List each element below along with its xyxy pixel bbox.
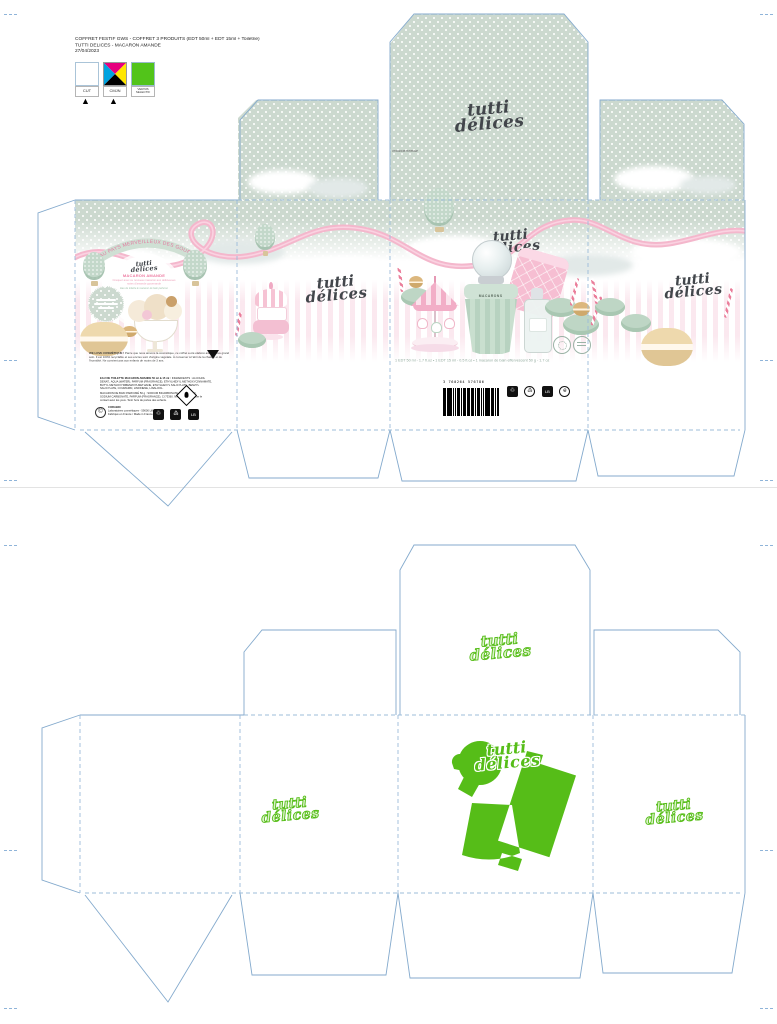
barcode-number: 3 760264 576786	[443, 380, 497, 384]
tower-dome	[255, 289, 287, 307]
crop-mark	[4, 480, 17, 481]
crop-mark	[760, 545, 773, 546]
macaron-illustration	[641, 328, 693, 366]
cmyk-marker-icon: ▲	[109, 97, 118, 106]
carousel-illustration	[411, 282, 459, 354]
crop-mark	[760, 14, 773, 15]
mini-macaron-icon	[573, 302, 590, 316]
cloud	[680, 176, 736, 194]
pouf-illustration	[595, 298, 625, 316]
green-medallion	[88, 286, 124, 322]
cut-marker-icon: ▲	[81, 97, 90, 106]
carousel-horse	[417, 318, 428, 329]
lb-icon: LB	[188, 409, 199, 420]
regulatory-icons: ♲ ♳ LB	[153, 409, 201, 427]
carousel-horse	[444, 318, 455, 329]
bottle-glass-cap	[472, 240, 512, 280]
medallion-line	[96, 299, 116, 301]
lb-icon: LB	[542, 386, 553, 397]
bottle-fluted-skirt	[460, 299, 522, 354]
printed-main-band: AU PAYS MERVEILLEUX DES GOURMANDISES tut…	[75, 200, 745, 430]
brand-logo: tutti délices	[296, 273, 376, 306]
sundae-cup	[134, 320, 178, 342]
cloud	[248, 170, 318, 194]
crop-mark	[4, 850, 17, 851]
company-name: CORABIO	[108, 406, 121, 409]
product-note: Eau de toilette & macaron de bain parfum…	[110, 287, 178, 290]
hot-air-balloon-icon	[424, 188, 454, 226]
small-bottle-illustration	[524, 288, 550, 352]
medallion-line	[94, 303, 118, 305]
crop-mark	[4, 1008, 17, 1009]
pouf-illustration	[621, 314, 651, 332]
barcode-bars	[443, 388, 499, 416]
crop-mark	[4, 545, 17, 546]
pink-candy	[142, 310, 152, 320]
file-header: COFFRET FESTIF GWS - COFFRET 3 PRODUITS …	[75, 37, 425, 60]
hot-air-balloon-icon	[83, 252, 105, 280]
brand-logo-green: tutti délices	[255, 795, 325, 826]
medallion-line	[98, 307, 114, 309]
printed-dust-flap-left	[238, 100, 378, 200]
brand-logo: tutti délices	[656, 271, 730, 302]
hot-air-balloon-icon	[255, 224, 275, 250]
cut-swatch	[75, 62, 99, 86]
brand-logo: tutti délices	[429, 97, 549, 137]
artwork-canvas: COFFRET FESTIF GWS - COFFRET 3 PRODUITS …	[0, 0, 777, 1024]
recycle-box-icon: ♲	[507, 386, 518, 397]
printed-top-flap: tutti délices 3760264576786GP	[390, 14, 588, 200]
bottle-label: MACARONS	[464, 284, 518, 299]
barcode-icons: ♲ ♳ LB e	[507, 386, 572, 404]
crop-mark	[4, 360, 17, 361]
tower-middle	[257, 307, 287, 321]
sheet-divider	[0, 487, 777, 488]
macaron-illustration	[80, 322, 128, 356]
copyright-icon: ©	[95, 407, 106, 418]
ingredients-title: EAU DE TOILETTE MACARON AMANDE 50 ml & 1…	[100, 377, 171, 380]
legal-intro: WE LOVE COSMÉTIQUE !	[89, 352, 124, 355]
triman-icon: ♲	[153, 409, 164, 420]
hot-air-balloon-icon	[183, 250, 207, 280]
crop-mark	[760, 360, 773, 361]
product-blurb: Craquez avec ce nouveau macaron aux déli…	[110, 279, 178, 286]
small-bottle-label	[529, 318, 547, 332]
carousel-horse	[431, 322, 442, 333]
varnish-swatch-label: VERNIS SELECTIF	[131, 86, 155, 97]
tidyman-icon: ♳	[170, 409, 181, 420]
crop-mark	[760, 850, 773, 851]
estimated-sign-icon: e	[559, 386, 570, 397]
pouf-illustration	[238, 332, 266, 348]
cookie	[166, 296, 177, 307]
sundae-stem	[153, 341, 157, 349]
contents-line: 1 EDT 50 ml - 1.7 fl.oz • 1 EDT 15 ml - …	[395, 359, 549, 363]
tidyman-icon: ♳	[524, 386, 535, 397]
vegan-icon	[207, 350, 219, 362]
sundae-illustration	[122, 292, 186, 356]
crop-mark	[4, 14, 17, 15]
varnish-swatch	[131, 62, 155, 86]
carousel-roof	[411, 282, 459, 306]
brand-logo-green: tutti délices	[639, 797, 709, 828]
cloud	[308, 178, 368, 198]
brand-logo-green: tutti délices	[462, 631, 538, 664]
crop-mark	[760, 480, 773, 481]
cupcake-bottle-illustration: MACARONS	[458, 240, 524, 354]
printed-dust-flap-right	[600, 100, 744, 200]
cmyk-swatch	[103, 62, 127, 86]
flap-plate-code: 3760264576786GP	[392, 150, 452, 154]
bottle-neck-band	[478, 276, 504, 284]
crop-mark	[760, 1008, 773, 1009]
file-date: 27/04/2023	[75, 49, 355, 55]
